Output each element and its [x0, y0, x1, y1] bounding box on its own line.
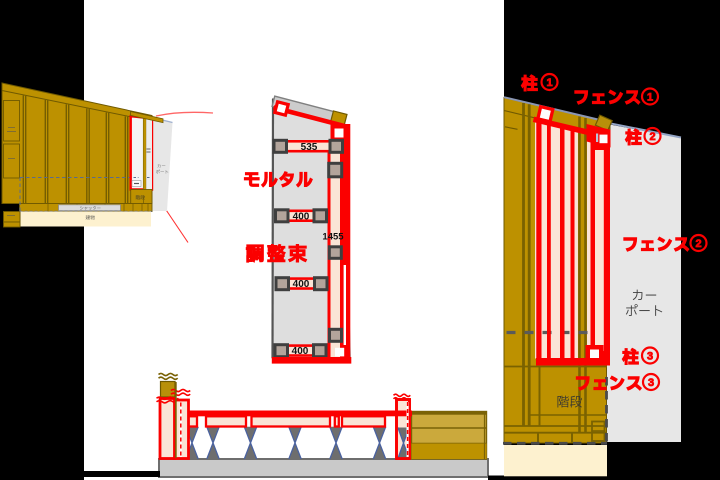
svg-text:535: 535: [301, 142, 318, 153]
svg-text:400: 400: [292, 346, 309, 357]
svg-text:400: 400: [293, 211, 310, 222]
svg-text:1: 1: [647, 92, 653, 104]
svg-text:2: 2: [649, 131, 655, 143]
svg-text:1: 1: [546, 77, 552, 89]
svg-text:3: 3: [648, 377, 654, 389]
svg-text:400: 400: [293, 279, 310, 290]
svg-text:3: 3: [647, 351, 653, 363]
svg-text:2: 2: [695, 238, 701, 250]
svg-text:1455: 1455: [322, 232, 344, 243]
